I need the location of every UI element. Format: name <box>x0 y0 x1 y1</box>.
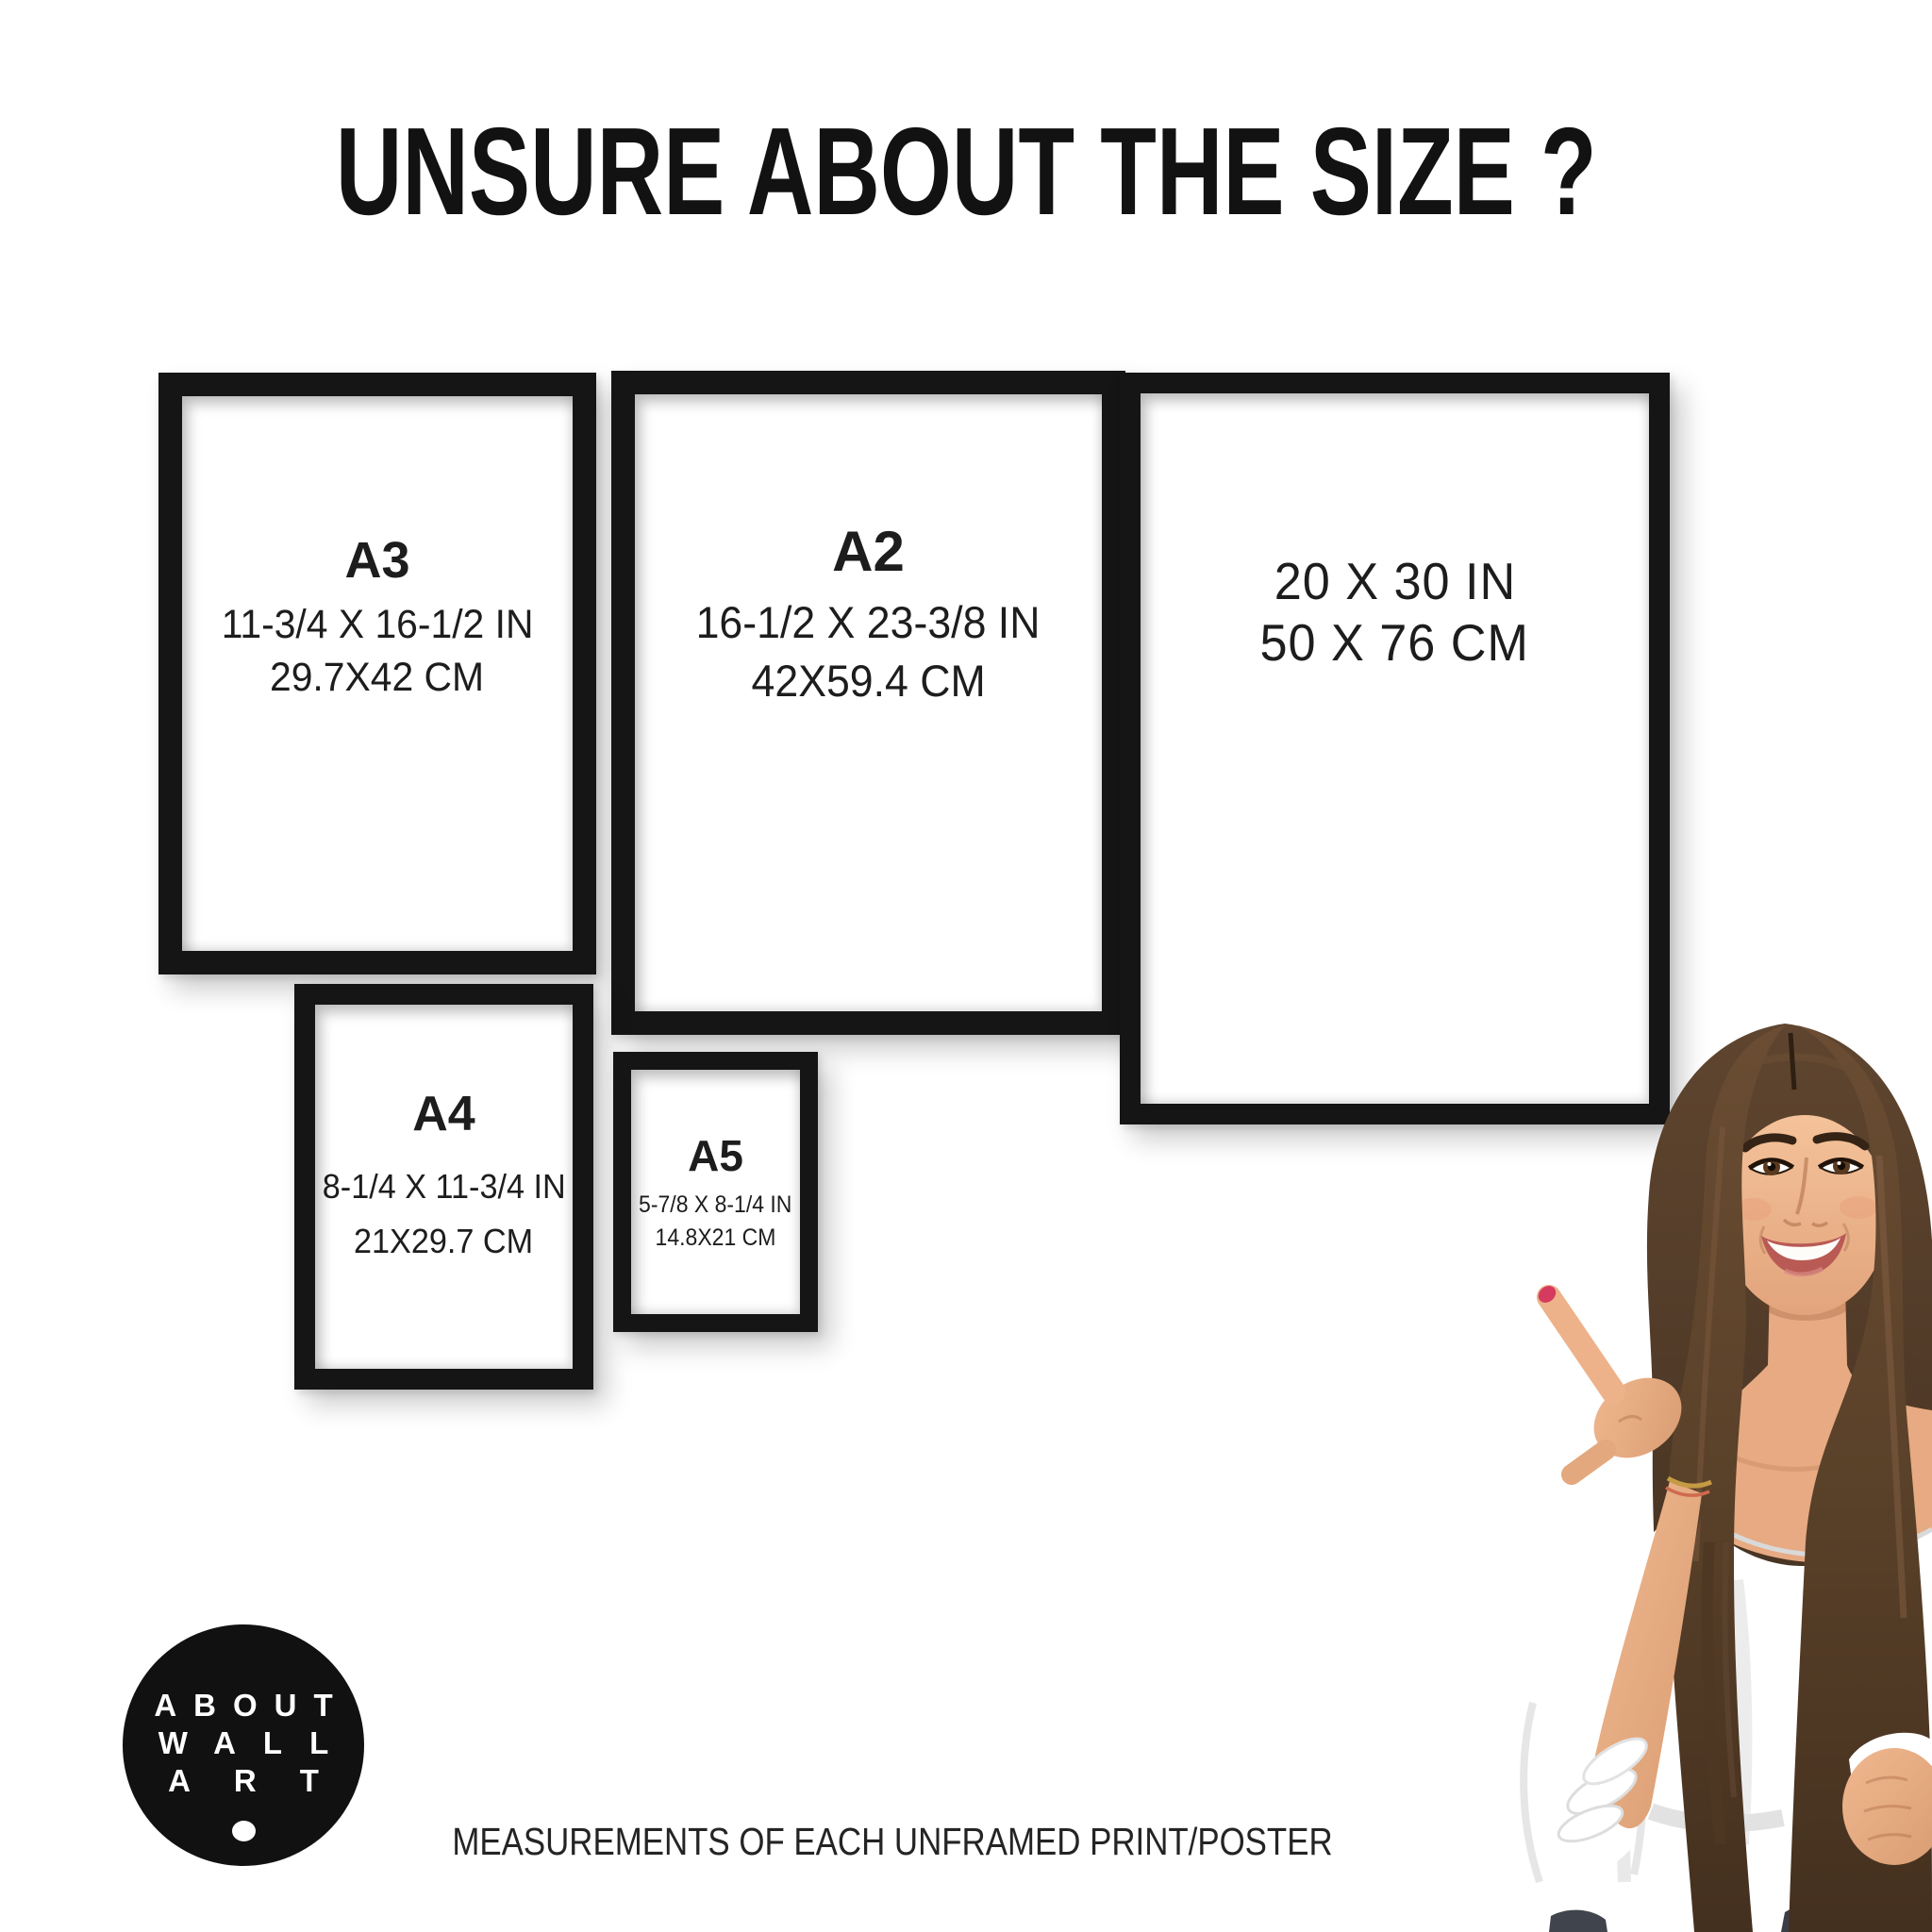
frame-a3-cm: 29.7X42 CM <box>270 652 484 705</box>
frame-20x30-cm: 50 X 76 CM <box>1260 612 1529 674</box>
frame-a4: A4 8-1/4 X 11-3/4 IN 21X29.7 CM <box>294 984 593 1390</box>
frame-a2-cm: 42X59.4 CM <box>751 652 985 709</box>
frame-a3-inches: 11-3/4 X 16-1/2 IN <box>222 599 534 652</box>
index-finger <box>1549 1297 1613 1391</box>
logo-line-wall: WALL <box>158 1724 356 1762</box>
logo-line-about: ABOUT <box>154 1687 349 1724</box>
frame-a4-label: A4 <box>412 1086 475 1142</box>
frame-20x30-inches: 20 X 30 IN <box>1274 551 1515 612</box>
frame-a5-inches: 5-7/8 X 8-1/4 IN <box>639 1189 791 1222</box>
footer-caption: MEASUREMENTS OF EACH UNFRAMED PRINT/POST… <box>321 1819 1464 1865</box>
frame-a5: A5 5-7/8 X 8-1/4 IN 14.8X21 CM <box>613 1052 818 1332</box>
logo-dot <box>232 1821 256 1841</box>
woman-photo <box>1453 1014 1932 1932</box>
frame-a4-inches: 8-1/4 X 11-3/4 IN <box>323 1159 566 1214</box>
frame-a2: A2 16-1/2 X 23-3/8 IN 42X59.4 CM <box>611 371 1125 1035</box>
frame-20x30: 20 X 30 IN 50 X 76 CM <box>1120 373 1670 1124</box>
footer-caption-text: MEASUREMENTS OF EACH UNFRAMED PRINT/POST… <box>452 1819 1332 1865</box>
frame-a5-cm: 14.8X21 CM <box>656 1222 776 1255</box>
frame-a5-label: A5 <box>688 1130 743 1181</box>
thumb <box>1572 1450 1606 1474</box>
frame-a4-cm: 21X29.7 CM <box>354 1214 533 1269</box>
page-title: UNSURE ABOUT THE SIZE ? <box>0 109 1932 234</box>
frame-a3: A3 11-3/4 X 16-1/2 IN 29.7X42 CM <box>158 373 596 974</box>
logo-line-art: ART <box>168 1762 362 1800</box>
frame-a2-label: A2 <box>832 519 905 584</box>
page-title-text: UNSURE ABOUT THE SIZE ? <box>336 109 1597 234</box>
woman-face <box>1722 1115 1888 1315</box>
frame-a2-inches: 16-1/2 X 23-3/8 IN <box>696 593 1041 651</box>
folded-hand <box>1842 1733 1932 1865</box>
frame-a3-label: A3 <box>344 531 409 590</box>
